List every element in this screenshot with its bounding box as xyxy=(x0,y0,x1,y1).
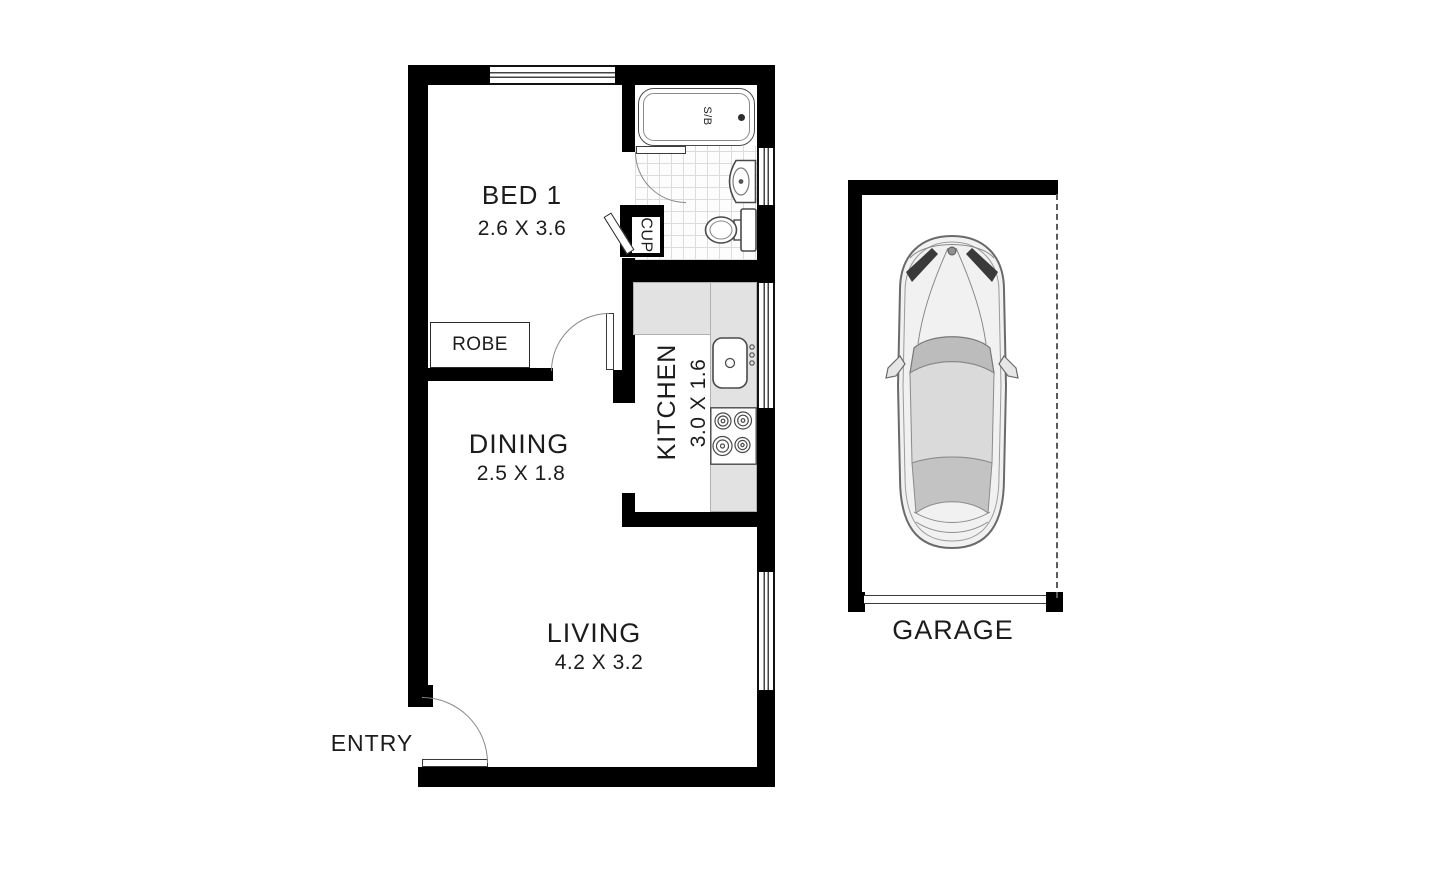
wall-bedroom-bottom xyxy=(428,368,553,381)
floor-plan: S/B CUP BED 1 2.6 X 3.6 ROBE xyxy=(0,0,1440,896)
bed1-label: BED 1 xyxy=(442,180,602,210)
wall-top-right xyxy=(615,65,775,85)
cupboard-label: CUP xyxy=(637,217,655,252)
garage-wall-left xyxy=(848,180,862,612)
garage-bottom-left-pier xyxy=(848,592,865,612)
bath-shower-label: S/B xyxy=(695,86,719,146)
garage-bottom-right-pier xyxy=(1046,592,1063,612)
bathtub-drain xyxy=(738,114,745,121)
garage-boundary-dashed-line xyxy=(1056,194,1058,598)
wall-left xyxy=(408,65,428,705)
dining-label: DINING xyxy=(439,428,599,460)
living-label: LIVING xyxy=(514,617,674,649)
kitchen-label: KITCHEN xyxy=(652,322,682,482)
dining-dims: 2.5 X 1.8 xyxy=(441,461,601,487)
wall-bottom xyxy=(418,767,775,787)
garage-label: GARAGE xyxy=(873,614,1033,646)
entry-label: ENTRY xyxy=(322,729,422,757)
stove-fixture xyxy=(710,407,757,465)
robe-label: ROBE xyxy=(430,332,530,358)
wall-right-seg1 xyxy=(757,65,775,148)
wall-right-seg3 xyxy=(757,408,775,572)
wall-kitchen-bottom xyxy=(622,512,757,527)
wall-kitchen-left-stub xyxy=(613,370,635,403)
kitchen-sink-fixture xyxy=(711,336,757,390)
window-bathroom xyxy=(757,148,775,205)
basin-fixture xyxy=(728,159,757,204)
window-kitchen xyxy=(757,283,775,408)
garage-wall-top xyxy=(848,180,1058,195)
bed1-dims: 2.6 X 3.6 xyxy=(442,216,602,242)
window-bedroom-top xyxy=(490,65,615,85)
kitchen-dims: 3.0 X 1.6 xyxy=(687,338,711,468)
garage-door xyxy=(864,595,1046,604)
living-dims: 4.2 X 3.2 xyxy=(519,650,679,676)
wall-right-seg2 xyxy=(757,205,775,283)
toilet-fixture xyxy=(703,206,757,254)
window-living xyxy=(757,572,775,690)
kitchen-counter-right xyxy=(710,282,757,512)
wall-bed-bath xyxy=(622,85,635,152)
wall-top-left xyxy=(408,65,490,85)
bedroom-door-swing xyxy=(551,313,609,371)
car-top-view xyxy=(886,226,1018,562)
wall-bath-bottom xyxy=(622,258,757,282)
entry-door-swing xyxy=(422,697,488,763)
